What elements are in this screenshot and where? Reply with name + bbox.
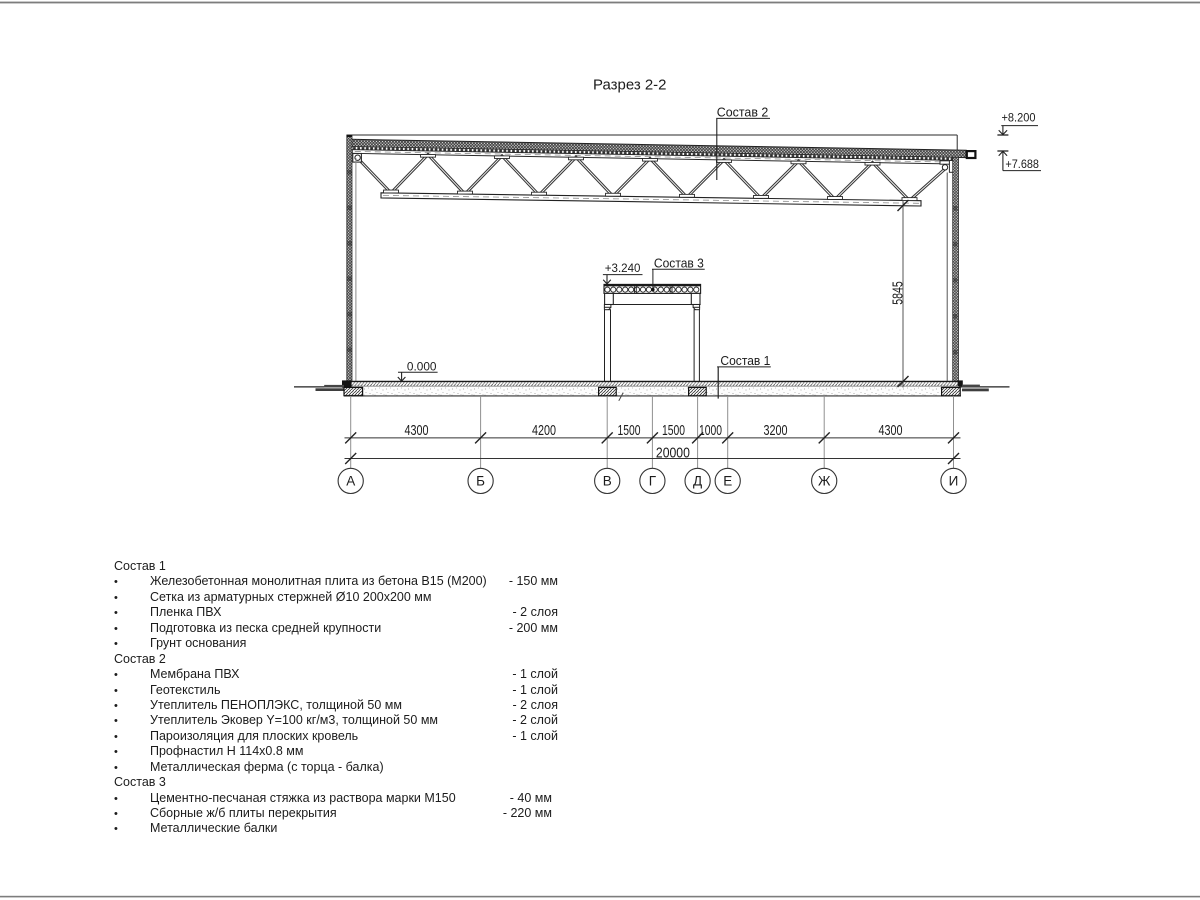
svg-text:+8.200: +8.200 bbox=[1002, 113, 1036, 125]
svg-text:Состав 2: Состав 2 bbox=[717, 105, 769, 119]
svg-text:В: В bbox=[603, 474, 612, 489]
svg-text:И: И bbox=[949, 474, 959, 489]
svg-text:Состав 3: Состав 3 bbox=[654, 256, 704, 270]
svg-text:3200: 3200 bbox=[764, 422, 788, 439]
svg-text:Б: Б bbox=[476, 474, 485, 489]
svg-text:Состав 1: Состав 1 bbox=[720, 354, 770, 368]
svg-text:5845: 5845 bbox=[889, 281, 906, 305]
svg-text:Е: Е bbox=[723, 474, 732, 489]
svg-text:20000: 20000 bbox=[656, 445, 690, 462]
svg-text:+7.688: +7.688 bbox=[1005, 159, 1039, 171]
svg-text:1500: 1500 bbox=[662, 422, 685, 439]
svg-text:4300: 4300 bbox=[879, 422, 903, 439]
svg-text:4200: 4200 bbox=[532, 422, 556, 439]
svg-text:+3.240: +3.240 bbox=[605, 263, 641, 275]
svg-text:Г: Г bbox=[649, 474, 657, 489]
svg-text:Ж: Ж bbox=[818, 474, 831, 489]
svg-text:Д: Д bbox=[693, 474, 702, 489]
svg-text:А: А bbox=[346, 474, 355, 489]
svg-text:0.000: 0.000 bbox=[407, 361, 437, 373]
svg-text:1000: 1000 bbox=[699, 422, 722, 439]
svg-text:1500: 1500 bbox=[618, 422, 641, 439]
svg-text:Разрез 2-2: Разрез 2-2 bbox=[593, 77, 667, 94]
svg-text:4300: 4300 bbox=[405, 422, 429, 439]
